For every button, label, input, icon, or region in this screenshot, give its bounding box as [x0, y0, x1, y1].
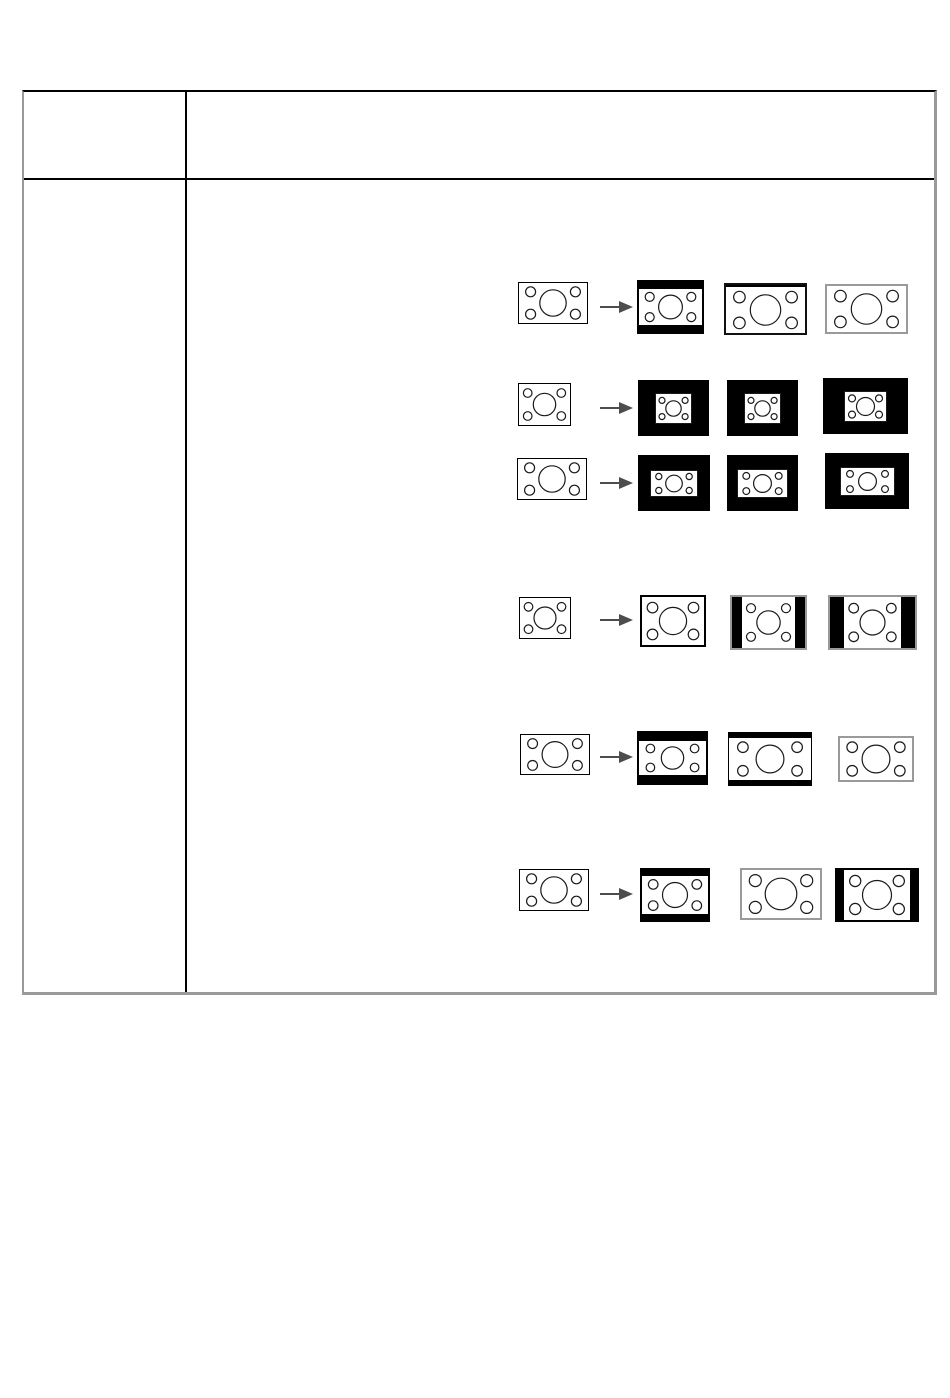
table-header-divider [24, 178, 934, 180]
table-header-right-cell [187, 92, 934, 178]
table-body-left-cell [24, 180, 185, 992]
table-column-divider [185, 92, 187, 992]
manual-page [0, 0, 950, 1398]
table-body-right-cell [187, 180, 934, 992]
screen-mode-table [22, 90, 937, 995]
table-header-left-cell [24, 92, 185, 178]
